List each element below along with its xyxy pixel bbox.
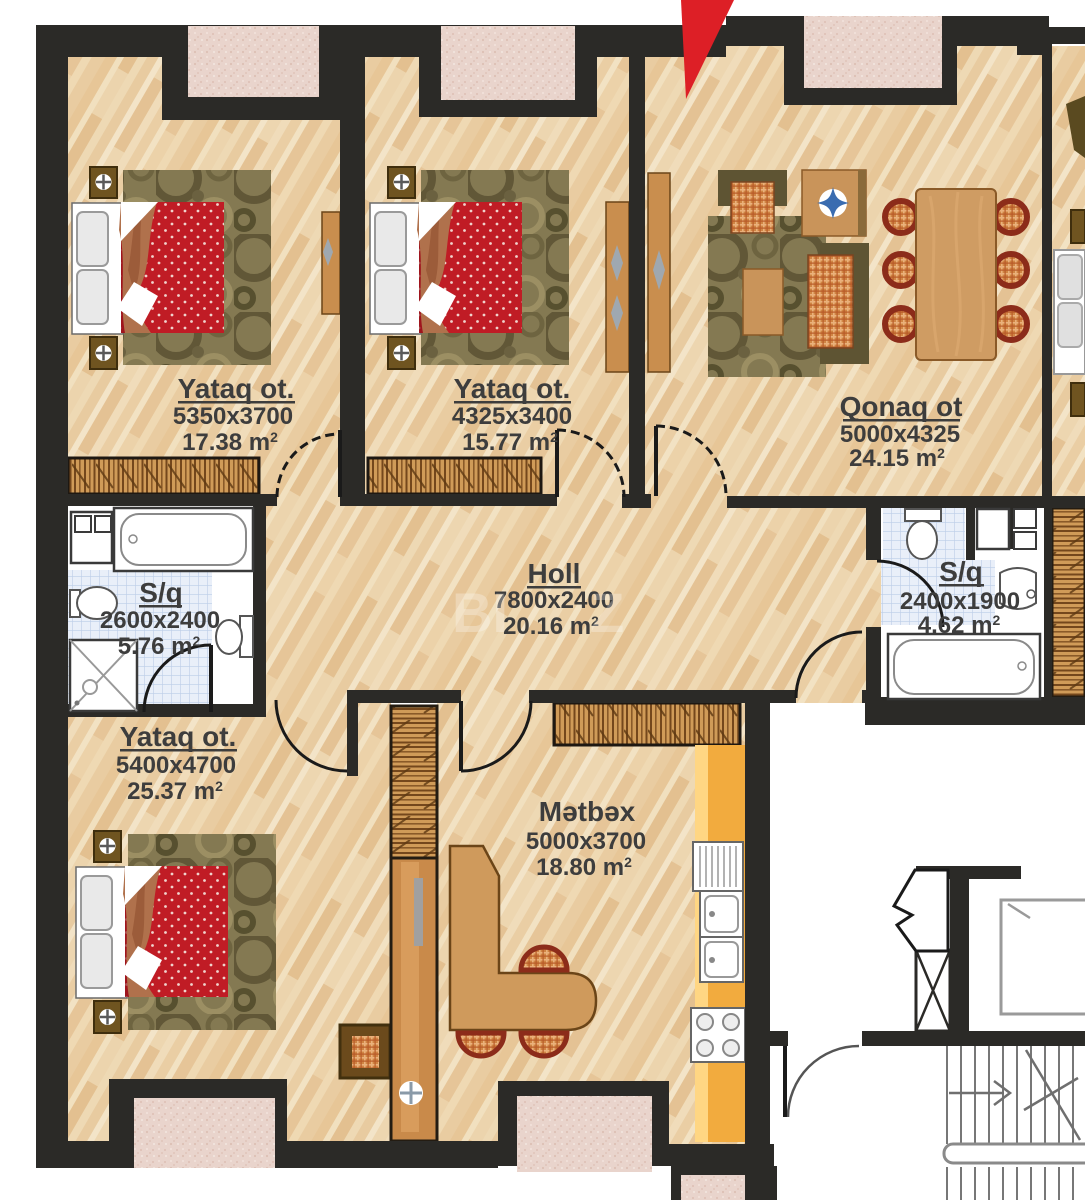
svg-text:2600x2400: 2600x2400 xyxy=(100,607,220,634)
svg-text:25.37 m2: 25.37 m2 xyxy=(127,778,223,805)
svg-text:5350x3700: 5350x3700 xyxy=(173,403,293,430)
svg-text:Yataq ot.: Yataq ot. xyxy=(454,373,571,404)
svg-text:2400x1900: 2400x1900 xyxy=(900,588,1020,615)
svg-text:17.38 m2: 17.38 m2 xyxy=(182,429,278,456)
svg-text:4325x3400: 4325x3400 xyxy=(452,403,572,430)
svg-text:BI: BI xyxy=(452,581,508,644)
svg-text:18.80 m2: 18.80 m2 xyxy=(536,854,632,881)
svg-text:Qonaq ot: Qonaq ot xyxy=(840,391,963,422)
svg-text:Z: Z xyxy=(590,581,624,644)
svg-text:5400x4700: 5400x4700 xyxy=(116,752,236,779)
svg-text:S/q: S/q xyxy=(939,556,983,587)
svg-text:4.62 m2: 4.62 m2 xyxy=(918,612,1001,639)
svg-text:Holl: Holl xyxy=(528,558,581,589)
svg-text:5000x4325: 5000x4325 xyxy=(840,421,960,448)
svg-text:15.77 m2: 15.77 m2 xyxy=(462,429,558,456)
svg-text:20.16 m2: 20.16 m2 xyxy=(503,613,599,640)
svg-text:24.15 m2: 24.15 m2 xyxy=(849,445,945,472)
svg-text:Mətbəx: Mətbəx xyxy=(539,796,636,827)
svg-text:S/q: S/q xyxy=(139,577,183,608)
svg-text:Yataq ot.: Yataq ot. xyxy=(120,721,237,752)
svg-text:5.76 m2: 5.76 m2 xyxy=(118,633,201,660)
svg-text:Yataq ot.: Yataq ot. xyxy=(178,373,295,404)
svg-text:5000x3700: 5000x3700 xyxy=(526,828,646,855)
